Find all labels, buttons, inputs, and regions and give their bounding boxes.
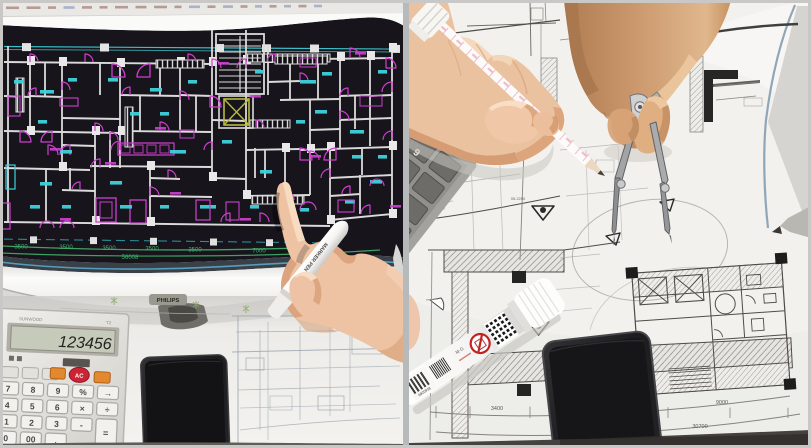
svg-text:4: 4	[5, 400, 10, 410]
svg-text:3500: 3500	[59, 245, 73, 251]
svg-text:=: =	[103, 428, 109, 438]
svg-text:05.2250: 05.2250	[511, 196, 526, 201]
svg-text:30700: 30700	[692, 424, 707, 430]
svg-text:9000: 9000	[716, 400, 728, 406]
svg-text:56008: 56008	[122, 255, 139, 261]
svg-text:AC: AC	[75, 373, 85, 379]
svg-text:3500: 3500	[188, 248, 202, 254]
svg-text:T2: T2	[106, 320, 112, 325]
svg-text:2: 2	[29, 418, 34, 428]
svg-text:8: 8	[30, 385, 35, 395]
svg-text:→: →	[103, 388, 112, 398]
svg-text:123456: 123456	[58, 334, 112, 353]
svg-text:÷: ÷	[105, 405, 110, 415]
svg-text:3500: 3500	[102, 246, 116, 252]
svg-text:3500: 3500	[14, 244, 28, 250]
svg-text:1: 1	[4, 417, 9, 427]
svg-text:PHILIPS: PHILIPS	[157, 298, 180, 304]
svg-text:3500: 3500	[145, 247, 159, 253]
svg-text:5: 5	[30, 401, 35, 411]
svg-text:3400: 3400	[491, 406, 503, 412]
svg-text:9: 9	[55, 386, 60, 396]
svg-text:7000: 7000	[252, 249, 266, 255]
svg-text:3: 3	[54, 419, 59, 429]
svg-text:0: 0	[3, 433, 8, 443]
svg-text:SUNWOOD: SUNWOOD	[19, 316, 43, 322]
svg-text:%: %	[79, 387, 87, 397]
svg-text:6: 6	[55, 402, 60, 412]
svg-text:×: ×	[80, 403, 85, 413]
svg-text:7: 7	[5, 384, 10, 394]
svg-text:00: 00	[26, 434, 36, 444]
